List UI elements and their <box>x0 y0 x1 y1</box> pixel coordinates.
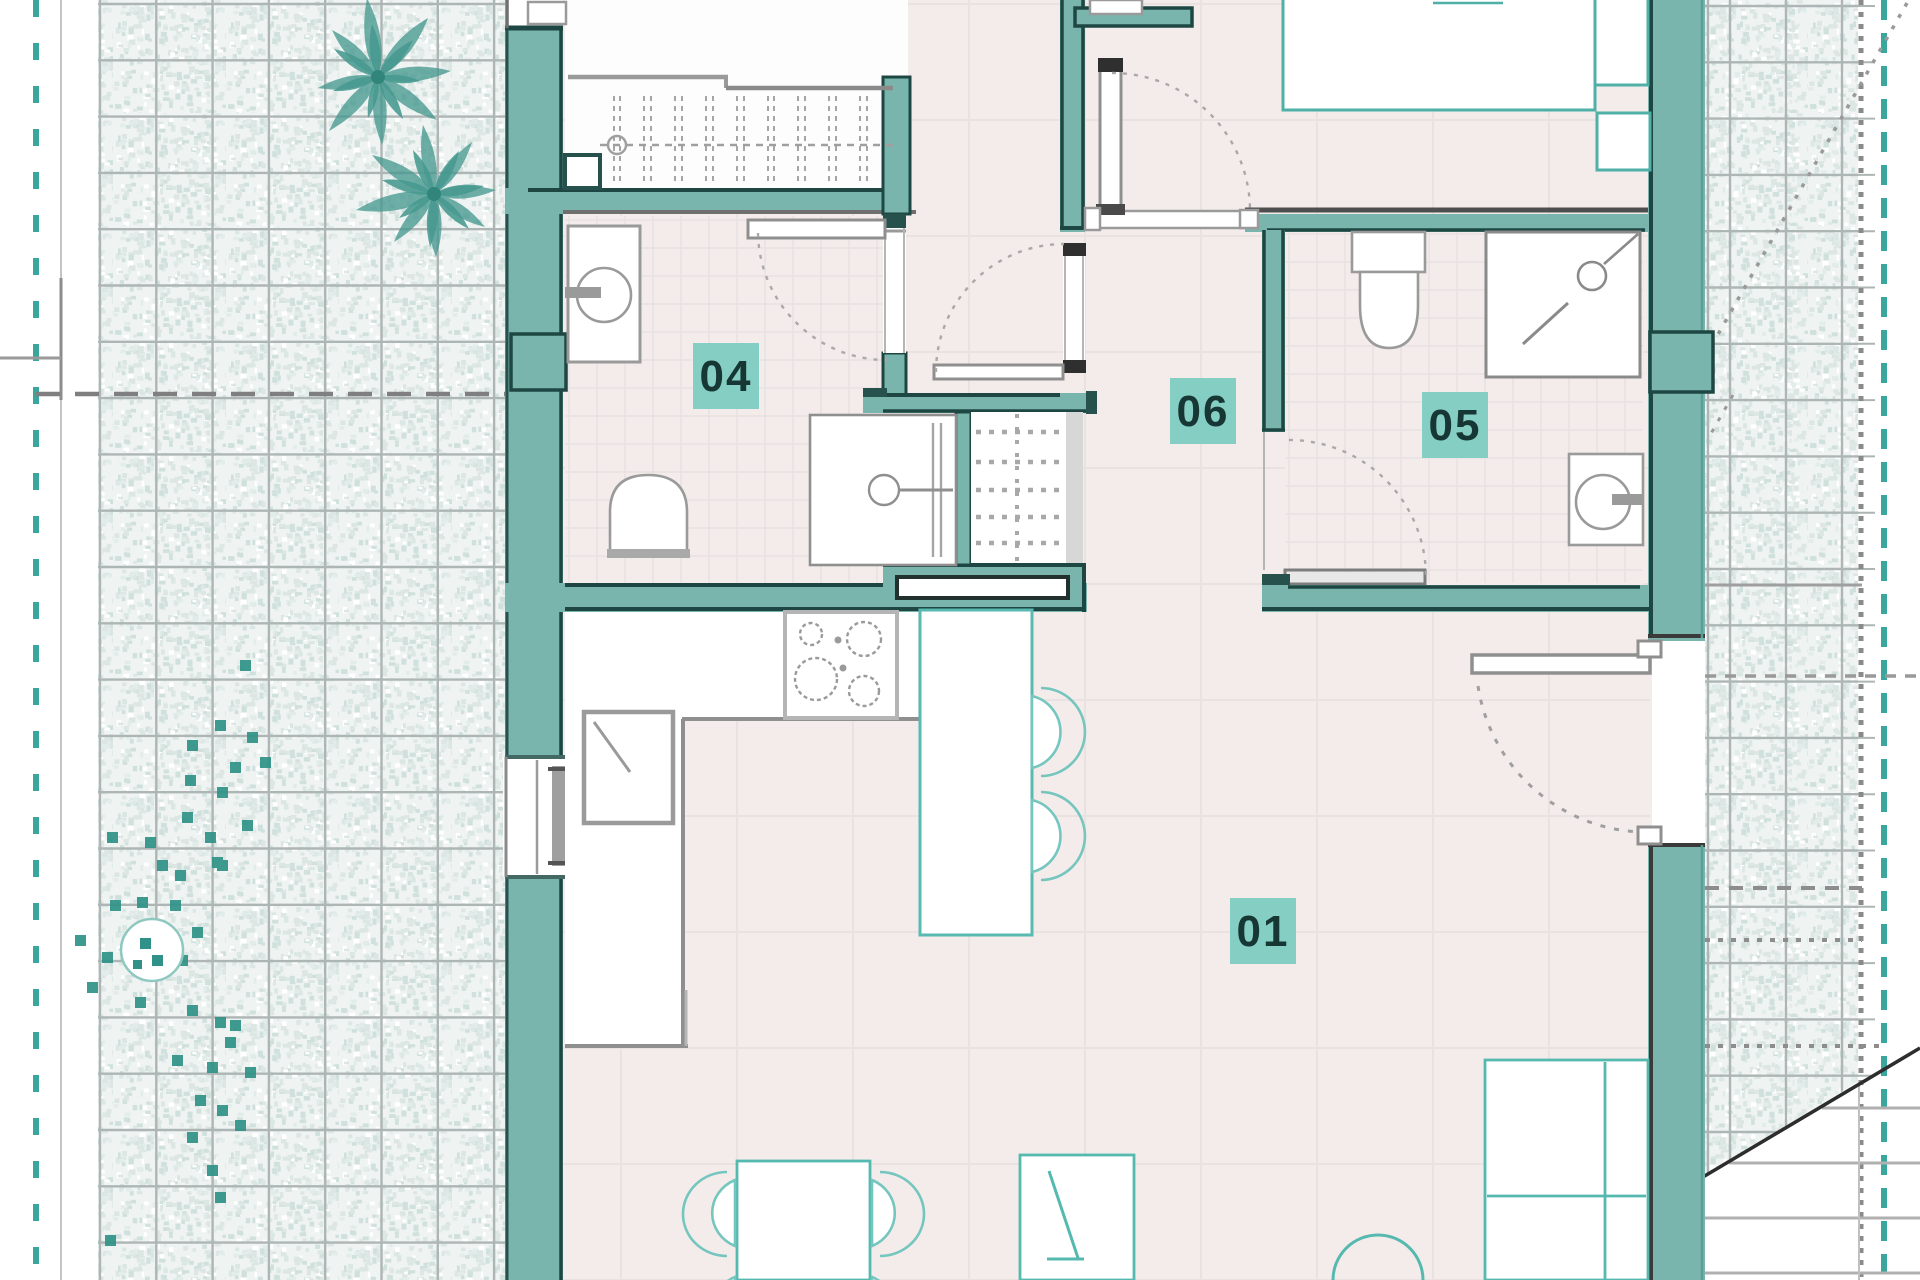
svg-text:04: 04 <box>700 352 753 401</box>
svg-text:05: 05 <box>1429 401 1482 450</box>
svg-text:06: 06 <box>1177 387 1230 436</box>
svg-text:01: 01 <box>1237 907 1290 956</box>
